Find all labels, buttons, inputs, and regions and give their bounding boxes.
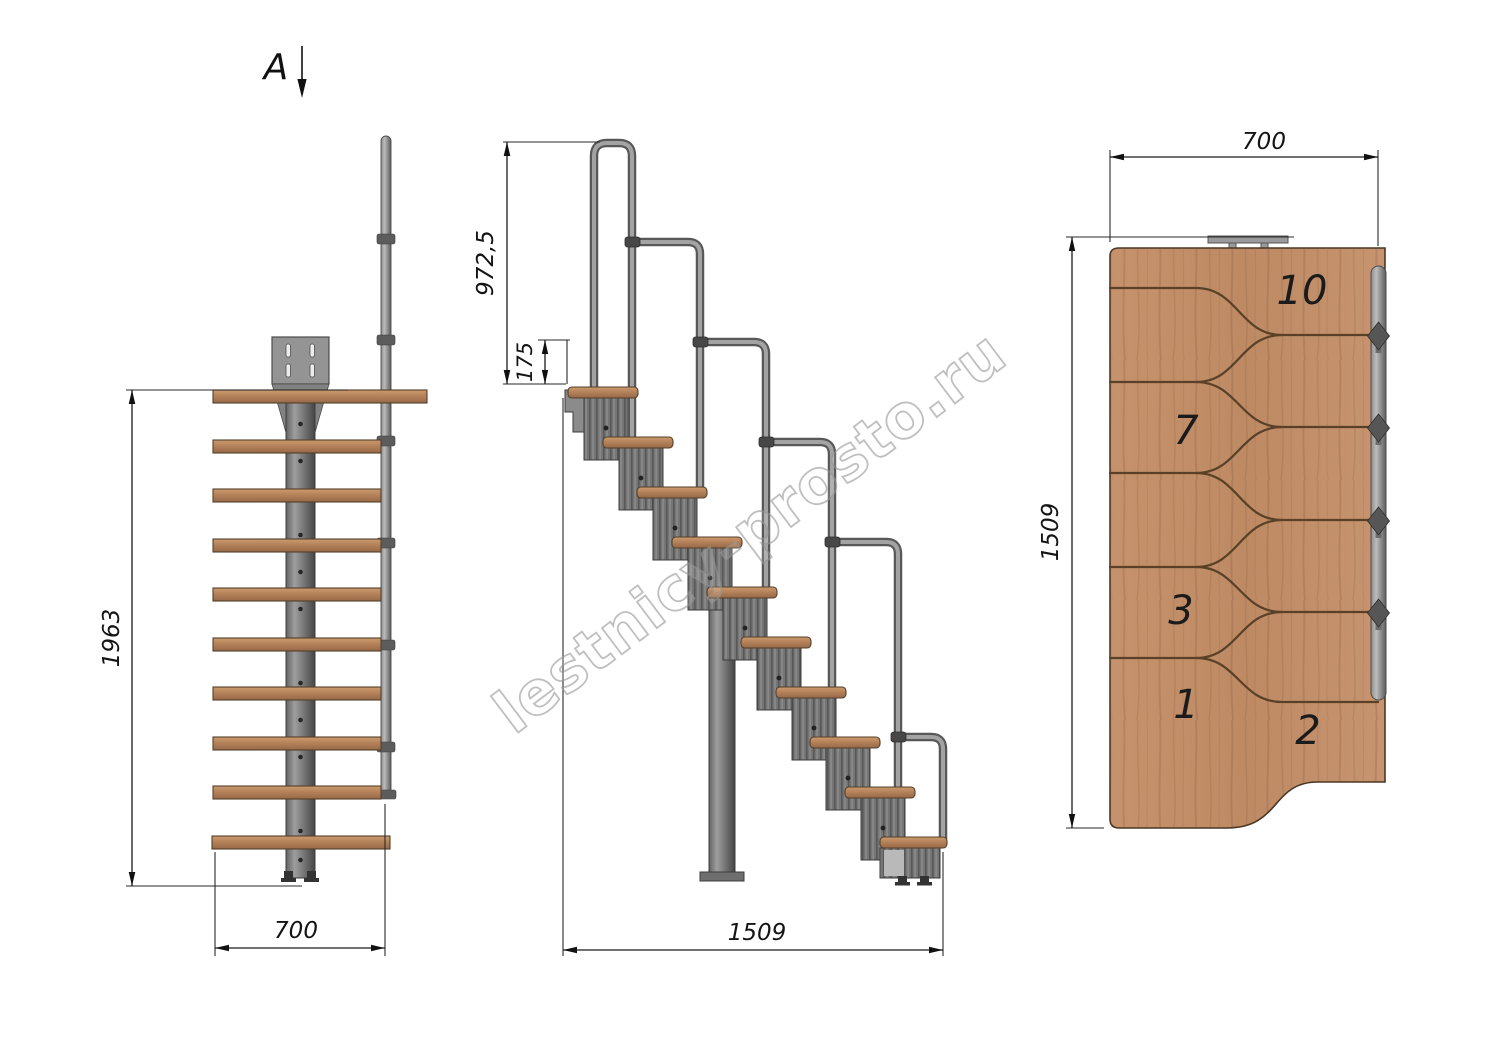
section-label: A: [262, 47, 289, 88]
side-offset-value: 175: [513, 342, 537, 382]
tread-number-7: 7: [1173, 408, 1199, 454]
top-width-value: 700: [1242, 129, 1286, 155]
dim-top-width: 700: [1110, 129, 1378, 246]
plan-deck: 10 7 3 2 1: [1110, 248, 1385, 828]
front-column: [281, 392, 319, 882]
front-height-value: 1963: [99, 609, 125, 668]
top-view: 10 7 3 2 1: [1038, 129, 1390, 828]
staircase-drawing: A: [0, 0, 1500, 1061]
tread-number-2: 2: [1295, 708, 1320, 754]
dim-side-offset: 175: [513, 340, 570, 384]
plan-handrail: [1368, 266, 1390, 700]
side-length-value: 1509: [728, 920, 787, 946]
plan-mounting-plate: [1208, 236, 1288, 249]
drawing-canvas: A: [0, 0, 1500, 1061]
top-length-value: 1509: [1038, 503, 1064, 562]
tread-number-1: 1: [1173, 682, 1198, 728]
front-view: 1963 700: [99, 136, 427, 956]
watermark-text: lestnicy-prosto.ru: [481, 318, 1019, 748]
side-rail-height-value: 972,5: [473, 230, 499, 296]
section-marker: A: [262, 46, 307, 98]
front-treads: [212, 390, 427, 849]
tread-number-3: 3: [1168, 588, 1193, 634]
front-width-value: 700: [274, 918, 318, 944]
tread-number-10: 10: [1277, 268, 1328, 314]
